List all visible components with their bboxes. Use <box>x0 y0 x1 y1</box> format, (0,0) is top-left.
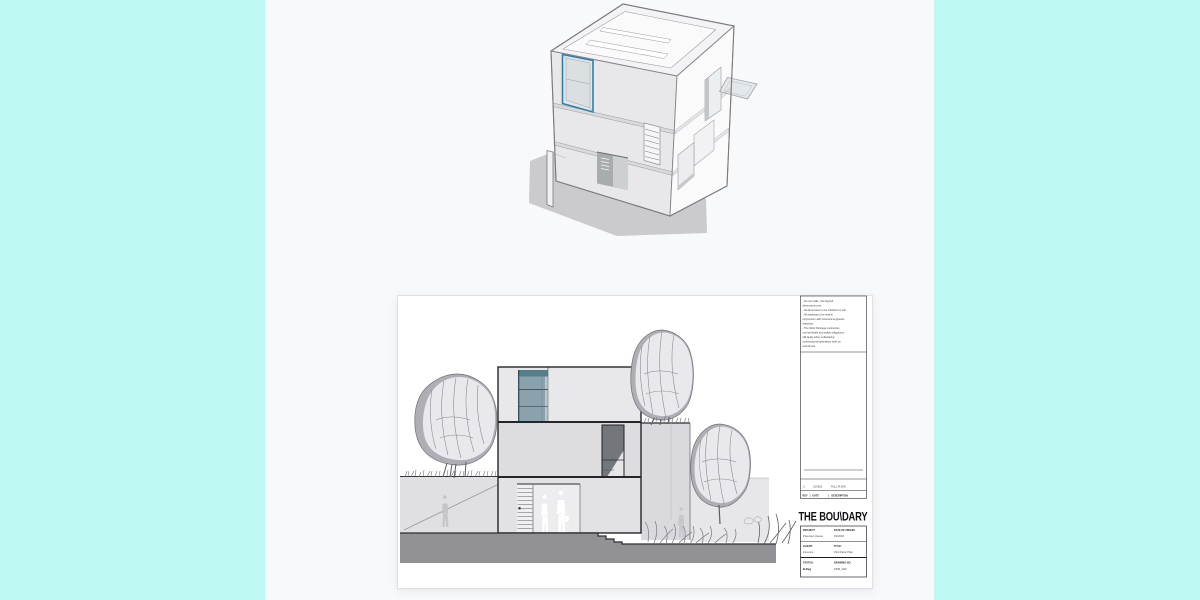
origin-value: 01/2018 <box>834 534 845 538</box>
tree-top-right <box>631 330 694 425</box>
revision-table: 0 01/2018 FULL PLANS REV | DATE | DESCRI… <box>803 486 849 498</box>
note-line: drawings. <box>803 322 814 326</box>
note-line: normal health and safety obligations <box>803 331 845 335</box>
highlighted-window[interactable] <box>563 55 594 113</box>
note-line: conjunction with structural engineers <box>803 317 846 321</box>
doorway <box>602 425 624 477</box>
note-line: constructional operations both on <box>803 340 842 344</box>
glazed-window <box>518 370 548 422</box>
project-table: PROJECT: Petersen House DATE OF ORIGIN: … <box>801 526 867 577</box>
company-logo: THE BOU\DARY <box>799 510 868 524</box>
separator: | <box>829 495 830 498</box>
house-3d-model[interactable] <box>440 0 790 250</box>
revision-date: 01/2018 <box>813 486 823 489</box>
title-value: First Floor Plan <box>834 550 853 554</box>
project-value: Petersen House <box>803 534 824 538</box>
status-value: B.Reg <box>803 567 811 571</box>
note-line: dimensions only. <box>803 304 822 308</box>
revision-description: FULL PLANS <box>831 486 846 489</box>
client-value: Ference <box>803 550 814 554</box>
tree-left <box>415 374 497 478</box>
project-label: PROJECT: <box>803 529 816 532</box>
title-block: - Do not scale. Use figured dimensions o… <box>799 296 868 577</box>
separator: | <box>810 495 811 498</box>
note-line: - All drawings to be read in <box>803 313 834 317</box>
elevation-drawing <box>400 330 796 563</box>
status-label: STATUS: <box>803 562 814 565</box>
note-line: - Do not scale. Use figured <box>803 299 834 303</box>
title-label: TITLE: <box>834 545 842 548</box>
drawing-no-value: 1806_090 <box>834 567 847 571</box>
client-label: CLIENT: <box>803 545 813 548</box>
note-line: and off site. <box>803 344 817 348</box>
drawing-sheet: - Do not scale. Use figured dimensions o… <box>397 295 873 589</box>
page: - Do not scale. Use figured dimensions o… <box>0 0 1200 600</box>
revision-number: 0 <box>804 486 806 489</box>
revision-header-rev: REV <box>803 495 808 498</box>
note-line: still apply when undertaking <box>803 335 835 339</box>
entry-recess <box>597 152 628 190</box>
revision-header-description: DESCRIPTION <box>832 495 849 498</box>
revision-header-date: DATE <box>813 495 820 498</box>
building-elevation <box>498 367 641 533</box>
drawing-no-label: DRAWING NO <box>834 562 851 565</box>
note-line: - All dimensions to be checked on site. <box>803 308 847 312</box>
stairs <box>517 484 533 533</box>
stair-window <box>644 123 660 165</box>
note-line: - The Work Package contractors <box>803 326 841 330</box>
origin-label: DATE OF ORIGIN: <box>834 529 855 532</box>
left-wall <box>400 477 499 534</box>
notes: - Do not scale. Use figured dimensions o… <box>803 299 847 348</box>
